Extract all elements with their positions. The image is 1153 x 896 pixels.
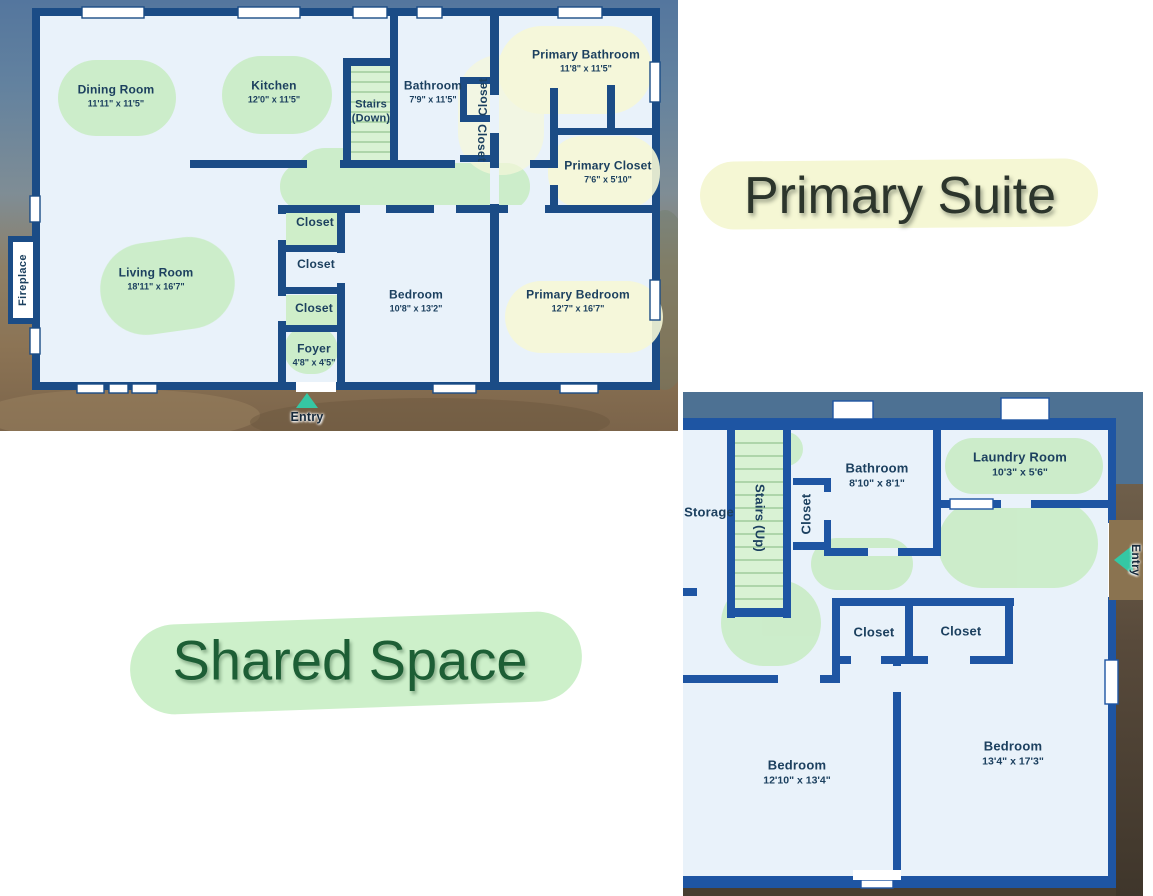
room-label-living: Living Room 18'11" x 16'7" — [119, 265, 194, 292]
room-label-bedroom-right: Bedroom 13'4" x 17'3" — [982, 739, 1044, 770]
second-floor-plan: Storage Stairs (Up) Closet Bathroom 8'10… — [683, 392, 1143, 896]
room-label-closet-lower: Closet — [473, 124, 489, 162]
second-floor-walls-graphic — [683, 392, 1143, 896]
floorplan-collage: Dining Room 11'11" x 11'5" Kitchen 12'0"… — [0, 0, 1153, 896]
room-label-closet-3: Closet — [295, 301, 333, 317]
room-label-closet-1: Closet — [296, 215, 334, 231]
room-label-bedroom-left: Bedroom 12'10" x 13'4" — [763, 758, 831, 789]
first-floor-plan: Dining Room 11'11" x 11'5" Kitchen 12'0"… — [0, 0, 678, 431]
room-label-storage: Storage — [684, 505, 734, 522]
room-label-dining: Dining Room 11'11" x 11'5" — [78, 82, 155, 109]
room-label-closet-left: Closet — [854, 625, 895, 642]
room-label-laundry: Laundry Room 10'3" x 5'6" — [973, 450, 1067, 481]
room-label-stairs-up: Stairs (Up) — [751, 484, 768, 552]
room-label-primary-bedroom: Primary Bedroom 12'7" x 16'7" — [526, 287, 630, 314]
fireplace-label: Fireplace — [16, 254, 30, 306]
entry-arrow-icon — [296, 393, 318, 408]
room-label-kitchen: Kitchen 12'0" x 11'5" — [248, 78, 300, 105]
room-label-closet-right: Closet — [941, 624, 982, 641]
room-label-closet-upper: Closet — [476, 78, 492, 116]
room-label-stairs-down: Stairs (Down) — [342, 98, 400, 127]
room-label-bedroom: Bedroom 10'8" x 13'2" — [389, 287, 443, 314]
entry-label-2: Entry — [1127, 544, 1143, 576]
room-label-closet-hall: Closet — [799, 494, 816, 535]
room-label-closet-2: Closet — [297, 257, 335, 273]
room-label-bathroom: Bathroom 7'9" x 11'5" — [404, 78, 462, 105]
room-label-primary-closet: Primary Closet 7'6" x 5'10" — [564, 158, 652, 185]
room-label-bathroom-2: Bathroom 8'10" x 8'1" — [846, 461, 909, 492]
room-label-primary-bathroom: Primary Bathroom 11'8" x 11'5" — [532, 47, 640, 74]
primary-suite-annotation: Primary Suite — [744, 166, 1056, 226]
entry-label: Entry — [291, 409, 324, 425]
shared-space-annotation: Shared Space — [173, 628, 528, 693]
room-label-foyer: Foyer 4'8" x 4'5" — [293, 341, 336, 368]
